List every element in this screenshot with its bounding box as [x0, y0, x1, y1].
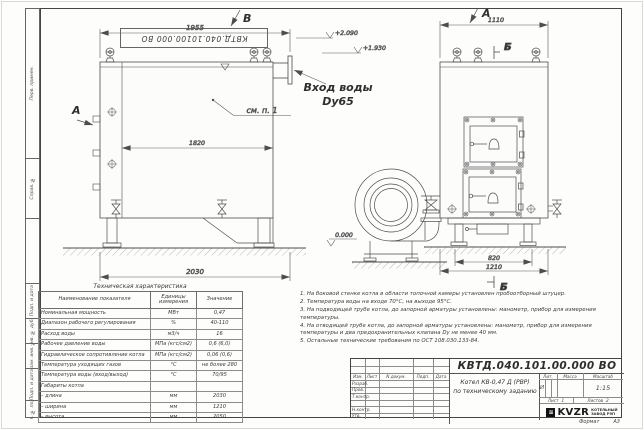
company-name-line2: ЗАВОД РЭП	[591, 412, 617, 416]
mass-label: Масса	[557, 373, 583, 379]
table-row: Габариты котла	[39, 381, 243, 391]
fan-outlet-valve	[421, 196, 441, 210]
row-value: 0,06 (0,6)	[197, 350, 243, 360]
row-value: 40-110	[197, 319, 243, 329]
col-docnum: N докум.	[379, 373, 413, 380]
col-data: Дата	[433, 373, 449, 380]
ground-hatch	[63, 249, 306, 256]
table-row: Номинальная мощностьМВт0,47	[39, 309, 243, 319]
company-cell: ≋ KVZR КОТЕЛЬНЫЙ ЗАВОД РЭП	[539, 403, 624, 420]
safety-valve	[532, 48, 540, 62]
see-note-text: см. п. 1	[247, 106, 278, 115]
level-mark-2090: +2.090	[296, 30, 358, 38]
sheets-label: Листов	[587, 398, 603, 403]
row-value: не более 280	[197, 360, 243, 370]
col-podp: Подп.	[413, 373, 433, 380]
table-row: Диапазон рабочего регулирования%40-110	[39, 319, 243, 329]
section-b-top-marker: Б	[494, 42, 512, 59]
fan-stand	[364, 241, 418, 261]
section-b-top-label: Б	[504, 42, 512, 53]
safety-valve	[474, 48, 482, 62]
row-name: Рабочее давление воды	[39, 340, 151, 350]
note-item: 3. На подводящей трубе котла, до запорно…	[300, 307, 622, 323]
safety-valve	[453, 48, 461, 62]
row-name: Температура воды (вход/выход)	[39, 371, 151, 381]
row-name: Гидравлическое сопротивление котла	[39, 350, 151, 360]
inlet-label-line1: Вход воды	[303, 81, 372, 94]
level-mark-1930: +1.930	[322, 45, 386, 53]
dim-text-1820: 1820	[189, 140, 205, 147]
view-b-label: В	[243, 12, 251, 25]
sheet-label: Лист	[548, 398, 559, 403]
format-value: А3	[613, 419, 620, 425]
dim-text-820: 820	[488, 255, 500, 262]
level-1930-text: +1.930	[363, 45, 386, 52]
dim-text-2030: 2030	[186, 268, 204, 276]
kvzr-logo-text: KVZR	[557, 407, 589, 418]
row-name: – длина	[39, 392, 151, 402]
row-name: – высота	[39, 412, 151, 422]
table-row: – высотамм2050	[39, 412, 243, 422]
note-item: 4. На отводящей трубе котла, до запорной…	[300, 323, 622, 339]
row-value: 70/95	[197, 371, 243, 381]
row-units: °С	[151, 371, 197, 381]
row-value: 2030	[197, 392, 243, 402]
table-row: – ширинамм1210	[39, 402, 243, 412]
inlet-label-line2: Dy65	[322, 95, 354, 108]
water-inlet-flange	[273, 56, 292, 84]
front-view-base	[448, 218, 540, 246]
safety-valve	[250, 48, 258, 62]
title-block: Изм. Лист N докум. Подп. Дата Разраб. Пр…	[350, 358, 622, 418]
row-units: м3/ч	[151, 329, 197, 339]
row-units: мм	[151, 402, 197, 412]
kvzr-logo-icon: ≋	[546, 408, 555, 417]
row-name: Номинальная мощность	[39, 309, 151, 319]
dimension-1955: 1955	[100, 24, 290, 58]
note-item: 1. На боковой стенке котла в области топ…	[300, 291, 622, 299]
col-izm: Изм.	[351, 373, 365, 380]
col-header-name: Наименование показателя	[39, 292, 151, 309]
table-row: Рабочее давление водыМПа (кгс/см2)0,6 (6…	[39, 340, 243, 350]
row-value: 0,47	[197, 309, 243, 319]
row-units	[151, 381, 197, 391]
row-name: – ширина	[39, 402, 151, 412]
ground-hatch	[352, 263, 447, 269]
drawing-sheet: { "frame": { "top_stamp": "КВТД.040.1010…	[0, 0, 644, 430]
table-row: Расход водым3/ч16	[39, 329, 243, 339]
row-units: МВт	[151, 309, 197, 319]
dim-text-1210: 1210	[486, 264, 502, 271]
dim-text-1955: 1955	[186, 24, 204, 32]
table-row: Температура уходящих газов°Сне более 280	[39, 360, 243, 370]
view-a-side-label: А	[71, 104, 81, 117]
ground-hatch	[424, 248, 566, 255]
format-label: Формат	[579, 419, 599, 425]
level-0-text: 0.000	[335, 232, 353, 239]
row-value: 1210	[197, 402, 243, 412]
row-units: мм	[151, 412, 197, 422]
doc-number: КВТД.040.101.00.000 ВО	[449, 359, 624, 374]
row-value	[197, 381, 243, 391]
row-units: мм	[151, 392, 197, 402]
row-value: 2050	[197, 412, 243, 422]
sheets-value: 2	[606, 398, 609, 403]
company-name: КОТЕЛЬНЫЙ ЗАВОД РЭП	[591, 408, 617, 417]
row-tkontr: Т.контр.	[351, 393, 379, 400]
sheet-value: 1	[561, 398, 564, 403]
side-valve	[552, 200, 562, 218]
row-value: 0,6 (6,0)	[197, 340, 243, 350]
lit-value: И	[539, 379, 545, 397]
table-row: Температура воды (вход/выход)°С70/95	[39, 371, 243, 381]
view-a-top-label: А	[481, 7, 491, 20]
row-name: Температура уходящих газов	[39, 360, 151, 370]
drawing-title-line1: Котел КВ-0,47 Д (РВР)	[460, 378, 529, 387]
row-name: Расход воды	[39, 329, 151, 339]
drawing-title: Котел КВ-0,47 Д (РВР) по техническому за…	[449, 373, 540, 424]
level-2090-text: +2.090	[335, 30, 358, 37]
row-utv: Утв.	[351, 413, 379, 420]
scale-value: 1:15	[583, 379, 623, 397]
note-item: 5. Остальные технические требования по О…	[300, 338, 622, 346]
row-value: 16	[197, 329, 243, 339]
row-name: Диапазон рабочего регулирования	[39, 319, 151, 329]
note-item: 2. Температура воды на входе 70°С, на вы…	[300, 299, 622, 307]
row-units: МПа (кгс/см2)	[151, 350, 197, 360]
tech-table-title: Техническая характеристика	[38, 283, 242, 290]
side-view-legs	[103, 218, 274, 247]
table-row: – длинамм2030	[39, 392, 243, 402]
view-a-side-marker: А	[71, 104, 93, 125]
row-units: %	[151, 319, 197, 329]
row-units: МПа (кгс/см2)	[151, 340, 197, 350]
level-mark-0000: 0.000	[327, 232, 357, 246]
inlet-callout: Вход воды Dy65	[294, 70, 373, 108]
tech-table-header: Наименование показателя Единицы измерени…	[39, 292, 243, 309]
tech-table: Наименование показателя Единицы измерени…	[38, 291, 243, 423]
view-b-marker: В	[231, 10, 251, 26]
table-row: Гидравлическое сопротивление котлаМПа (к…	[39, 350, 243, 360]
row-units: °С	[151, 360, 197, 370]
col-header-units: Единицы измерения	[151, 292, 197, 309]
boiler-front-view	[424, 48, 566, 254]
drawing-title-line2: по техническому заданию	[453, 387, 536, 396]
dimension-2030: 2030	[100, 252, 290, 281]
col-header-value: Значение	[197, 292, 243, 309]
format-note: Формат А3	[500, 419, 620, 425]
row-name: Габариты котла	[39, 381, 151, 391]
boiler-side-view	[63, 48, 306, 256]
safety-valve	[263, 48, 271, 62]
tech-characteristics: Техническая характеристика Наименование …	[38, 283, 242, 423]
technical-notes: 1. На боковой стенке котла в области топ…	[300, 291, 622, 346]
col-list: Лист	[365, 373, 379, 380]
safety-valve	[106, 48, 114, 62]
